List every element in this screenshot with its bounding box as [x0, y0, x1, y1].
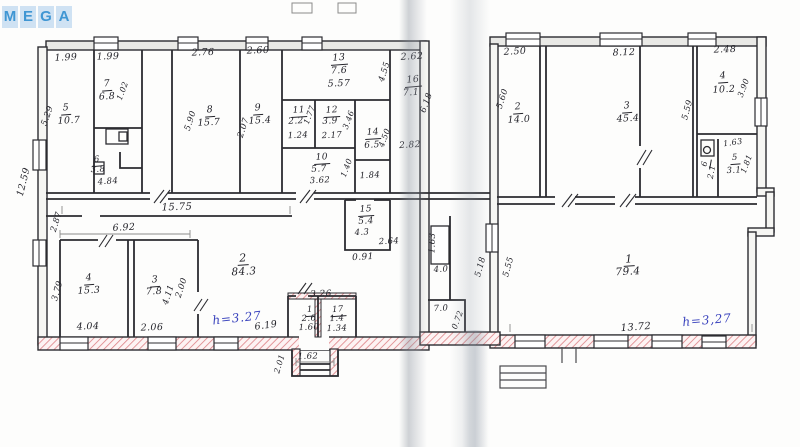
label-room7-area: 6.8 [99, 92, 116, 102]
left-building-outer-walls [38, 41, 429, 350]
label-dim-362: 3.62 [310, 176, 331, 186]
label-room10-area: 5.7 [311, 165, 327, 175]
label-dim-70: 7.0 [433, 304, 448, 313]
window-symbols [33, 33, 767, 350]
label-room4R-num: 4 [717, 71, 728, 83]
label-room8-area: 15.7 [197, 118, 220, 129]
label-dim-43: 4.3 [354, 228, 369, 237]
label-dim-124: 1.24 [288, 131, 309, 141]
label-room16-num: 16 [404, 75, 422, 88]
label-room2L-area: 84.3 [231, 266, 256, 278]
label-room3R-num: 3 [621, 101, 632, 113]
floorplan-scan: 1.991.992.762.60137.65.574.552.62167.16.… [0, 0, 800, 447]
label-dim-276: 2.76 [191, 48, 214, 58]
label-dim-1575: 15.75 [162, 202, 193, 213]
toilet-fixtures [94, 129, 714, 174]
page-top-marks [292, 3, 356, 13]
label-room5-area: 10.7 [57, 116, 80, 127]
watermark-letter: M [2, 6, 18, 28]
label-dim-199-a: 1.99 [54, 53, 77, 64]
label-room1R-area: 79.4 [615, 266, 640, 278]
label-dim-199-b: 1.99 [96, 52, 119, 62]
label-room5-num: 5 [60, 103, 71, 115]
label-room13-num: 13 [330, 53, 348, 66]
watermark-letter: G [38, 6, 54, 28]
label-dim-250: 2.50 [503, 47, 526, 58]
label-dim-484: 4.84 [97, 177, 118, 187]
label-dim-162: 1.62 [298, 352, 319, 361]
label-room13-area: 7.6 [331, 66, 348, 76]
label-dim-206: 2.06 [140, 323, 163, 333]
label-dim-812: 8.12 [612, 48, 635, 58]
label-room12-area: 3.9 [322, 117, 338, 127]
label-dim-184: 1.84 [360, 171, 381, 181]
label-room10-num: 10 [314, 153, 331, 165]
right-building-interior-walls [497, 46, 757, 204]
label-room3R-area: 45.4 [616, 114, 639, 125]
label-room2R-num: 2 [512, 102, 523, 114]
label-room9-num: 9 [252, 103, 263, 115]
label-dim-40: 4.0 [433, 265, 448, 274]
label-dim-160: 1.60 [299, 323, 320, 332]
label-room5R-num: 5 [730, 153, 741, 164]
label-room2R-area: 14.0 [507, 115, 530, 126]
label-dim-163-mid: 1.63 [428, 233, 437, 254]
label-dim-282: 2.82 [399, 141, 421, 151]
label-room3-area: 7.8 [146, 287, 163, 297]
label-dim-217: 2.17 [322, 131, 343, 141]
label-room4-num: 4 [83, 273, 94, 285]
label-room4-area: 15.3 [77, 286, 100, 297]
label-room4R-area: 10.2 [712, 85, 735, 96]
label-dim-404: 4.04 [76, 322, 99, 332]
mega-watermark: M E G A [2, 6, 72, 28]
watermark-letter: A [56, 6, 72, 28]
label-dim-326: 3.26 [310, 290, 332, 300]
entrance-steps [500, 347, 576, 388]
label-dim-262: 2.62 [400, 52, 423, 63]
label-dim-264: 2.64 [379, 237, 400, 247]
label-room9-area: 15.4 [248, 116, 271, 127]
label-room16-area: 7.1 [403, 88, 420, 98]
connector-bottom-wall [420, 332, 500, 345]
label-room8-num: 8 [204, 105, 215, 117]
label-dim-134: 1.34 [327, 324, 348, 333]
label-dim-091: 0.91 [352, 253, 374, 263]
label-dim-692: 6.92 [112, 223, 135, 234]
label-dim-557: 5.57 [327, 79, 350, 89]
label-room7-num: 7 [101, 79, 112, 91]
watermark-letter: E [20, 6, 36, 28]
label-dim-1372: 13.72 [620, 322, 651, 334]
label-dim-248: 2.48 [713, 45, 736, 55]
label-dim-260: 2.60 [246, 46, 269, 56]
label-room17-area: 1.4 [329, 314, 344, 323]
label-room6-area: 3.8 [90, 165, 105, 174]
label-room15-area: 5.4 [358, 217, 374, 227]
label-room2L-num: 2 [237, 252, 249, 266]
